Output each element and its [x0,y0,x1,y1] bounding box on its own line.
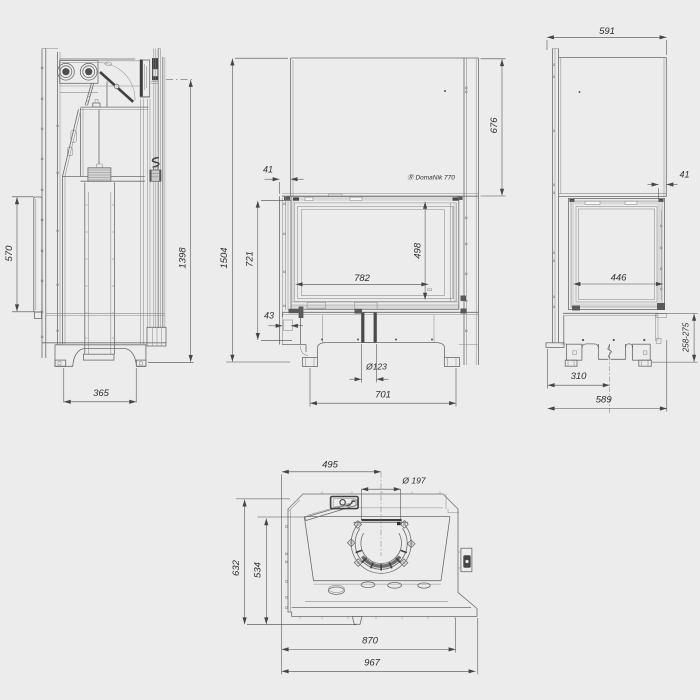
svg-text:495: 495 [322,460,339,471]
svg-text:498: 498 [412,242,423,259]
svg-text:632: 632 [231,559,242,576]
svg-text:446: 446 [611,273,628,284]
svg-text:1504: 1504 [219,247,230,268]
svg-text:676: 676 [489,117,500,134]
svg-text:Ø 197: Ø 197 [401,476,425,486]
svg-text:310: 310 [571,371,588,382]
svg-text:591: 591 [599,26,615,37]
svg-text:43: 43 [264,310,274,320]
svg-text:967: 967 [364,658,381,669]
svg-text:Ø123: Ø123 [365,361,387,371]
svg-text:782: 782 [354,273,371,284]
svg-text:701: 701 [375,390,391,401]
svg-text:534: 534 [253,562,264,578]
svg-text:589: 589 [596,394,613,405]
svg-text:41: 41 [263,164,273,174]
svg-text:41: 41 [679,169,689,179]
svg-text:1398: 1398 [178,247,189,269]
svg-text:570: 570 [4,245,15,262]
svg-text:721: 721 [245,251,256,267]
svg-text:Ⓡ DomaNik 770: Ⓡ DomaNik 770 [407,174,455,182]
svg-text:870: 870 [362,636,379,647]
svg-text:365: 365 [93,388,110,399]
svg-text:258-275: 258-275 [682,322,691,353]
